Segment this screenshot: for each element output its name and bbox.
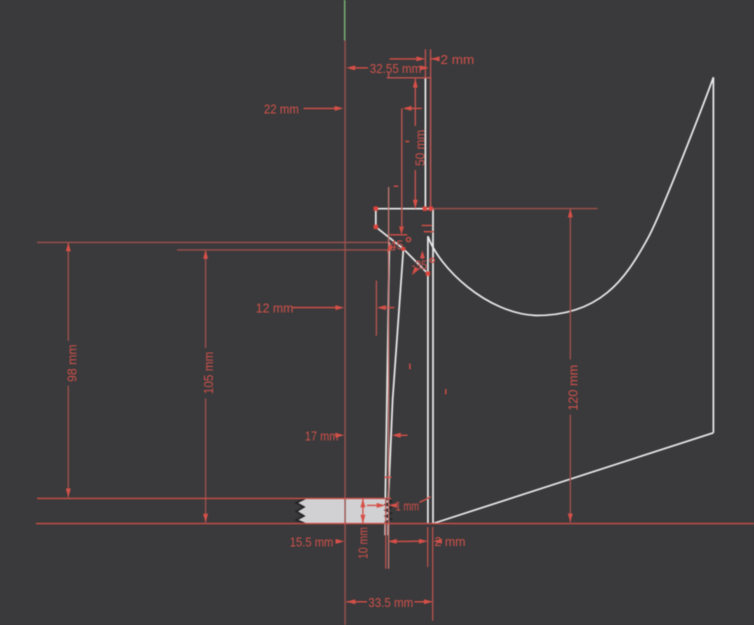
svg-text:1 mm: 1 mm: [396, 498, 420, 513]
svg-text:32.55 mm: 32.55 mm: [370, 61, 422, 76]
svg-text:12 mm: 12 mm: [256, 301, 294, 316]
svg-text:120 mm: 120 mm: [565, 365, 580, 411]
svg-text:50 mm: 50 mm: [412, 130, 427, 166]
svg-text:98 mm: 98 mm: [65, 344, 80, 382]
svg-text:33.5 mm: 33.5 mm: [368, 595, 413, 610]
svg-text:45: 45: [390, 237, 404, 252]
svg-text:2 mm: 2 mm: [435, 534, 466, 549]
svg-text:2 mm: 2 mm: [441, 52, 475, 67]
svg-text:15.5 mm: 15.5 mm: [290, 534, 334, 549]
svg-text:22 mm: 22 mm: [264, 101, 299, 116]
svg-text:105 mm: 105 mm: [201, 352, 216, 395]
svg-text:-35: -35: [412, 257, 428, 272]
svg-text:17 mm: 17 mm: [305, 428, 339, 443]
svg-text:10 mm: 10 mm: [356, 527, 371, 559]
